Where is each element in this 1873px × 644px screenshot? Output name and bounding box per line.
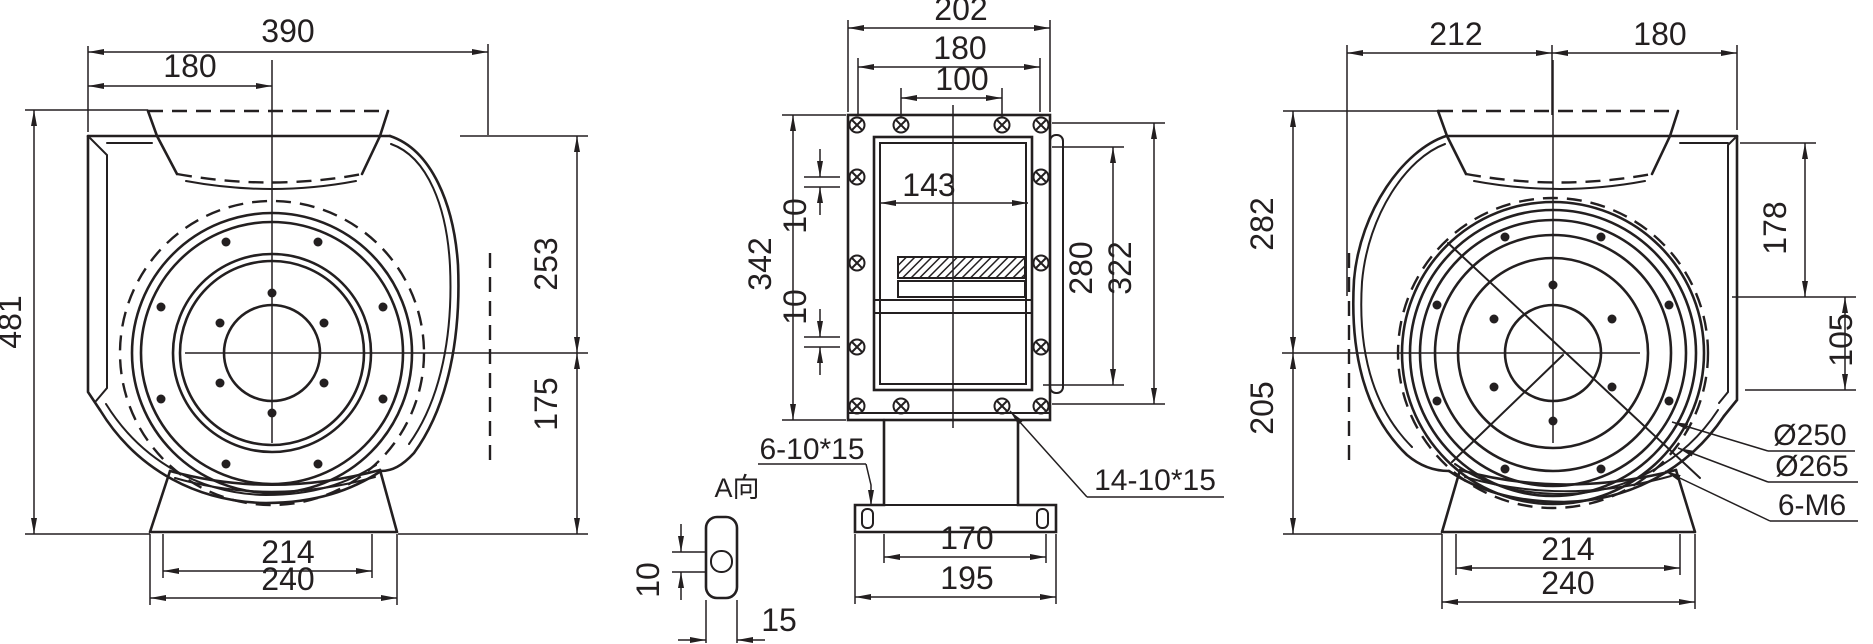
dim-front-gap-bottom: 10 (777, 289, 813, 325)
dim-right-width-left: 212 (1429, 16, 1482, 52)
dim-left-base-width: 240 (261, 561, 314, 597)
left-view: 390 180 481 253 175 214 240 (0, 13, 588, 605)
dim-left-overall-height: 481 (0, 295, 28, 348)
dim-front-outer-height: 322 (1102, 241, 1138, 294)
front-view: 202 180 100 342 143 10 10 280 322 (630, 0, 1224, 643)
dim-right-side-upper: 178 (1757, 201, 1793, 254)
dim-front-flange-width: 202 (934, 0, 987, 27)
front-view-dimensions: 202 180 100 342 143 10 10 280 322 (630, 0, 1224, 643)
label-bolt-circle-inner: Ø250 (1773, 419, 1846, 452)
dim-right-upper-height: 282 (1244, 197, 1280, 250)
dim-right-base-holes: 214 (1541, 531, 1594, 567)
dim-right-lower-height: 205 (1244, 381, 1280, 434)
dim-front-bolt-pitch: 100 (935, 61, 988, 97)
front-view-geometry (706, 105, 1063, 598)
dim-detail-width: 15 (761, 602, 797, 638)
dim-front-flange-height: 342 (742, 237, 778, 290)
dim-right-width-right: 180 (1633, 16, 1686, 52)
label-foot-slots: 6-10*15 (759, 433, 864, 466)
drawing-canvas: 390 180 481 253 175 214 240 (0, 0, 1873, 644)
dim-left-inlet-offset: 180 (163, 48, 216, 84)
label-view-a: A向 (714, 473, 759, 503)
right-view-geometry (1282, 60, 1737, 532)
label-bolt-circle-outer: Ø265 (1775, 450, 1848, 483)
right-view-dimensions: 212 180 282 205 178 105 214 240 Ø250 Ø26… (1244, 16, 1859, 609)
dim-left-overall-width: 390 (261, 13, 314, 49)
label-tapped-holes: 6-M6 (1778, 489, 1846, 522)
label-flange-slots: 14-10*15 (1094, 464, 1216, 497)
dim-front-opening-width: 143 (902, 167, 955, 203)
dim-front-bolt-height: 280 (1063, 241, 1099, 294)
fan-technical-drawing: 390 180 481 253 175 214 240 (0, 0, 1873, 644)
dim-right-side-lower: 105 (1823, 313, 1859, 366)
right-view: 212 180 282 205 178 105 214 240 Ø250 Ø26… (1244, 16, 1859, 609)
dim-detail-height: 10 (630, 562, 666, 598)
dim-front-foot-width: 195 (940, 560, 993, 596)
dim-front-gap-top: 10 (777, 198, 813, 234)
dim-front-foot-holes: 170 (940, 520, 993, 556)
dim-left-lower-height: 175 (528, 377, 564, 430)
dim-left-upper-height: 253 (528, 237, 564, 290)
left-view-geometry (88, 60, 588, 532)
dim-right-base-width: 240 (1541, 565, 1594, 601)
